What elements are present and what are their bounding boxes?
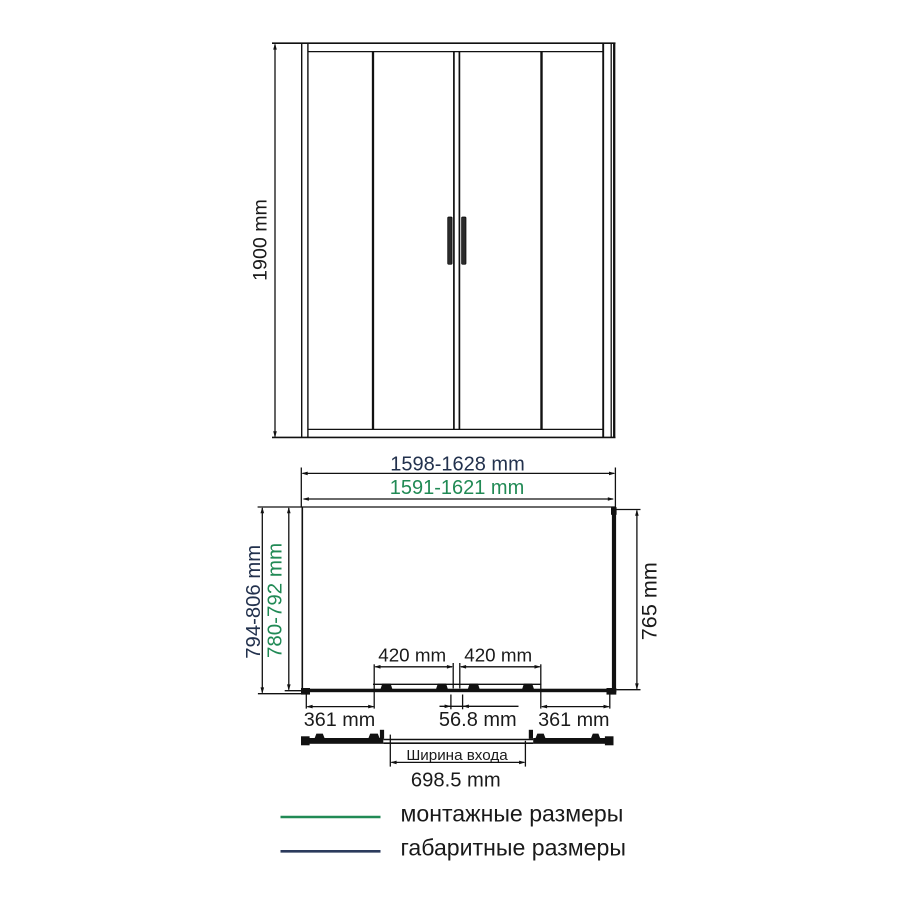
svg-text:420 mm: 420 mm — [464, 645, 532, 666]
svg-text:1591-1621 mm: 1591-1621 mm — [390, 477, 525, 499]
svg-text:420 mm: 420 mm — [378, 645, 446, 666]
svg-text:361 mm: 361 mm — [538, 709, 609, 731]
svg-text:56.8 mm: 56.8 mm — [439, 709, 517, 731]
svg-text:765 mm: 765 mm — [637, 562, 662, 640]
svg-text:габаритные размеры: габаритные размеры — [401, 835, 626, 861]
svg-text:780-792 mm: 780-792 mm — [263, 543, 286, 658]
svg-text:361 mm: 361 mm — [304, 709, 375, 731]
svg-text:698.5 mm: 698.5 mm — [411, 769, 501, 791]
svg-text:монтажные размеры: монтажные размеры — [401, 800, 624, 826]
svg-text:1900 mm: 1900 mm — [250, 199, 272, 281]
svg-text:794-806 mm: 794-806 mm — [243, 545, 265, 659]
svg-text:1598-1628 mm: 1598-1628 mm — [390, 453, 525, 475]
svg-text:Ширина входа: Ширина входа — [406, 747, 508, 764]
